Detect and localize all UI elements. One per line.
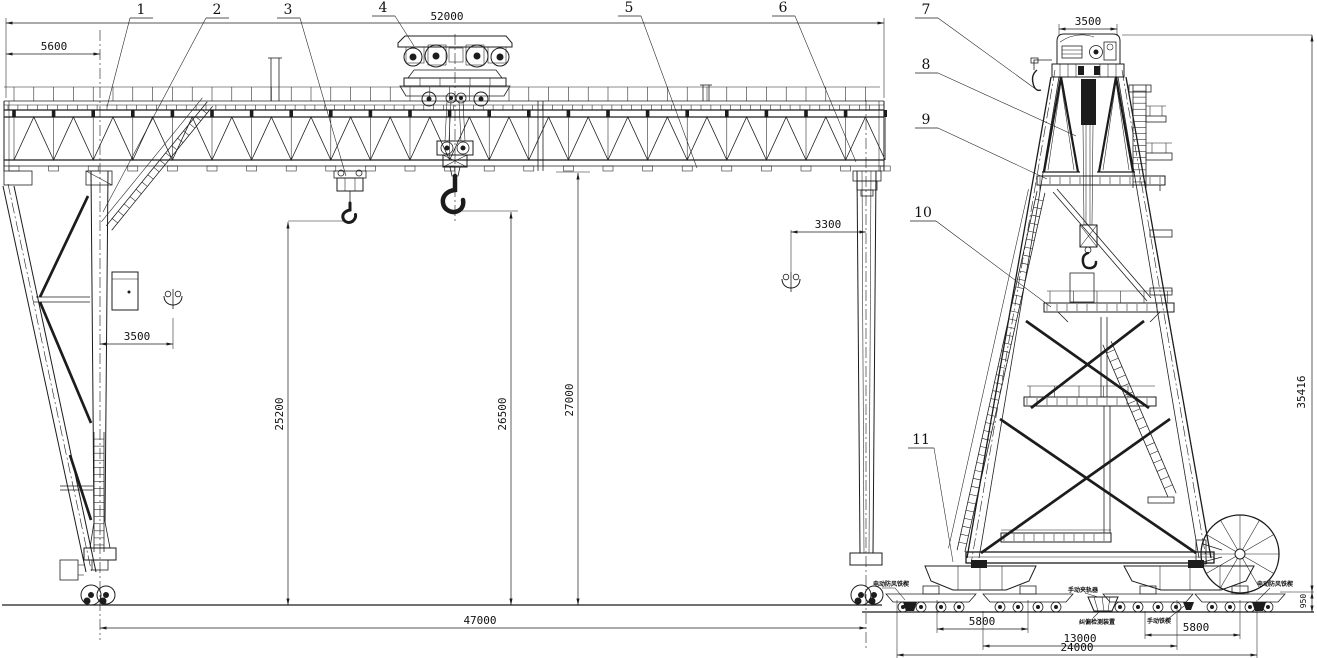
right-stair-tower (1129, 85, 1172, 295)
trolley-assembly (398, 34, 512, 222)
left-leg-assembly (3, 30, 213, 640)
dim-hook-approach-left: 3500 (124, 330, 151, 343)
bottom-walkway (1001, 533, 1111, 542)
callout-1: 1 (137, 2, 146, 18)
hoist-ropes-and-hook (1070, 79, 1097, 302)
side-trolley (1052, 34, 1124, 77)
dim-bogie-wheelbase-left: 5800 (969, 615, 996, 628)
callout-7: 7 (922, 2, 931, 18)
aux-hook (343, 203, 356, 222)
dim-rail-span: 47000 (463, 614, 496, 627)
dim-lift-height-aux: 25200 (273, 397, 286, 430)
right-travel-bogie (850, 553, 883, 605)
dim-bogie-wheelbase-right: 5800 (1183, 621, 1210, 634)
manual-wedge-device (1183, 602, 1194, 610)
callout-4: 4 (379, 0, 388, 16)
front-view-dimensions: 52000 5600 3500 3300 25200 26500 27000 4… (6, 10, 884, 628)
label-deviation-device: 纠偏检测装置 (1079, 618, 1115, 626)
label-manual-rail-clamp: 手动夹轨器 (1068, 586, 1099, 594)
balance-beam-right (1124, 566, 1254, 590)
dim-clearance-height: 27000 (563, 383, 576, 416)
dim-girder-span: 52000 (430, 10, 463, 23)
dim-trolley-gauge: 3500 (1075, 15, 1102, 28)
callout-10: 10 (914, 205, 932, 221)
sill-beam-and-bogies (886, 552, 1285, 612)
callout-2: 2 (213, 2, 222, 18)
dim-hook-approach-right: 3300 (815, 218, 842, 231)
aux-hoist (334, 170, 366, 222)
callout-9: 9 (922, 112, 931, 128)
inclined-access-ladder (949, 189, 1045, 552)
gantry-crane-engineering-drawing: 52000 5600 3500 3300 25200 26500 27000 4… (0, 0, 1317, 658)
callout-8: 8 (922, 57, 931, 73)
main-hook (443, 176, 463, 212)
label-anti-wind-left: 电动防风铁楔 (873, 580, 909, 588)
dim-rail-height: 950 (1299, 594, 1308, 609)
dim-lift-height-main: 26500 (496, 397, 509, 430)
wind-wedge-left (903, 602, 917, 611)
pendant-bracket (1031, 58, 1052, 90)
callout-6: 6 (779, 0, 788, 16)
callout-5: 5 (625, 0, 634, 16)
label-anti-wind-right: 电动防风铁楔 (1257, 580, 1293, 588)
electrical-cabinet (112, 272, 138, 310)
right-leg-assembly (850, 100, 883, 648)
callout-3: 3 (284, 2, 293, 18)
balance-beam-left (925, 566, 1036, 590)
callout-11: 11 (912, 432, 930, 448)
label-manual-wedge: 手动铁楔 (1147, 617, 1171, 625)
dim-base-length: 24000 (1060, 641, 1093, 654)
dim-overall-height: 35416 (1295, 375, 1308, 408)
upper-platform (1044, 303, 1174, 312)
dim-cantilever: 5600 (41, 40, 68, 53)
drawing-sheet: 52000 5600 3500 3300 25200 26500 27000 4… (0, 0, 1317, 658)
side-view-dimensions: 3500 35416 950 5800 5800 13000 24000 (897, 15, 1314, 658)
